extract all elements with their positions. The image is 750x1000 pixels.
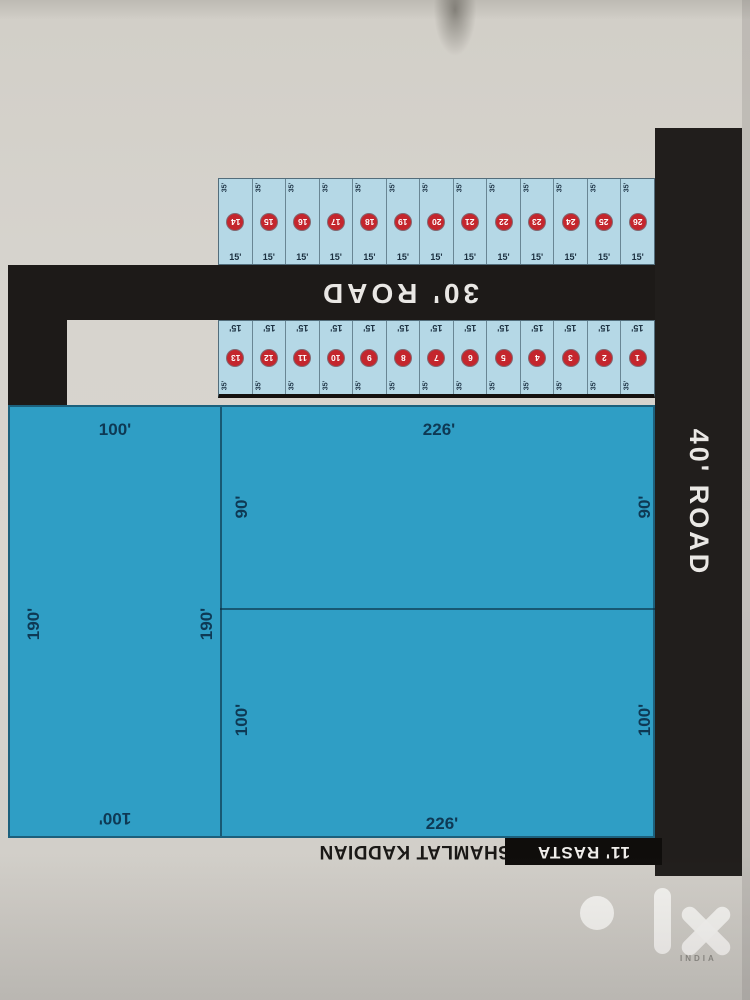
plot-number: 5 (501, 353, 506, 363)
strip-plot-cell: 15'335' (554, 321, 588, 394)
plot-dimension-label: 15' (521, 252, 554, 262)
strip-plot-cell: 35'2015' (420, 179, 454, 264)
plot-number-badge: 24 (563, 214, 579, 230)
plot-number-badge: 1 (630, 350, 646, 366)
plot-number-badge: 17 (328, 214, 344, 230)
plot-dimension-label: 15' (219, 323, 252, 333)
plot-dimension-label: 15' (320, 323, 353, 333)
olx-l-glyph (654, 888, 671, 954)
plot-dimension-label: 35' (255, 179, 262, 197)
plot-dimension-label: 35' (456, 377, 463, 395)
plot-number: 9 (367, 353, 372, 363)
strip-plot-cell: 35'2315' (521, 179, 555, 264)
plot-dimension-label: 15' (387, 252, 420, 262)
plot-dimension-label: 35' (624, 179, 631, 197)
strip-plot-cell: 35'1915' (387, 179, 421, 264)
strip-plot-cell: 35'1415' (219, 179, 253, 264)
plot-number-badge: 7 (428, 350, 444, 366)
plot-number: 4 (535, 353, 540, 363)
plot-dimension-label: 15' (253, 252, 286, 262)
strip-plot-cell: 35'1615' (286, 179, 320, 264)
plot-number: 23 (532, 217, 541, 227)
plot-dimension-label: 35' (222, 377, 229, 395)
strip-plot-cell: 15'535' (487, 321, 521, 394)
plot-dimension-label: 15' (420, 252, 453, 262)
strip-plot-cell: 35'2515' (588, 179, 622, 264)
plot-dimension-label: 35' (356, 377, 363, 395)
strip-plot-cell: 35'1815' (353, 179, 387, 264)
plot-divider-horizontal (220, 608, 657, 610)
plot-number: 11 (298, 353, 307, 363)
plot-number-badge: 15 (261, 214, 277, 230)
plot-number: 17 (331, 217, 340, 227)
plot-dimension-label: 35' (255, 377, 262, 395)
plot-number-badge: 25 (596, 214, 612, 230)
plot-dimension-label: 15' (487, 252, 520, 262)
plot-number: 2 (602, 353, 607, 363)
plot-dimension-label: 35' (490, 179, 497, 197)
plot-dimension-label: 35' (389, 179, 396, 197)
plot-dimension-label: 35' (624, 377, 631, 395)
plot-dimension-label: 35' (523, 377, 530, 395)
plot-dimension-label: 15' (253, 323, 286, 333)
plot-number-badge: 12 (261, 350, 277, 366)
plot-dimension-label: 15' (588, 252, 621, 262)
strip-plot-cell: 15'1035' (320, 321, 354, 394)
plot-dimension-label: 35' (490, 377, 497, 395)
site-plan-photo: 30' ROAD 35'1415'35'1515'35'1615'35'1715… (0, 0, 750, 1000)
dimension-label: 226' (423, 420, 455, 440)
plot-number-badge: 5 (496, 350, 512, 366)
plot-number-badge: 21 (462, 214, 478, 230)
plot-dimension-label: 15' (521, 323, 554, 333)
plot-dimension-label: 15' (621, 252, 654, 262)
plot-number-badge: 3 (563, 350, 579, 366)
dimension-label: 100' (232, 704, 252, 736)
plot-number-badge: 11 (294, 350, 310, 366)
plot-dimension-label: 15' (588, 323, 621, 333)
plot-number-badge: 13 (227, 350, 243, 366)
plot-dimension-label: 35' (557, 377, 564, 395)
dimension-label: 190' (197, 608, 217, 640)
strip-plot-cell: 15'235' (588, 321, 622, 394)
plot-dimension-label: 35' (356, 179, 363, 197)
strip-plot-cell: 35'1715' (320, 179, 354, 264)
strip-plot-row-lower: 15'1335'15'1235'15'1135'15'1035'15'935'1… (218, 320, 655, 398)
road-30-left-leg (8, 265, 67, 405)
plot-dimension-label: 15' (320, 252, 353, 262)
plot-number-badge: 14 (227, 214, 243, 230)
plot-dimension-label: 15' (554, 252, 587, 262)
plot-dimension-label: 15' (621, 323, 654, 333)
road-40: 40' ROAD (655, 128, 742, 876)
strip-plot-cell: 15'935' (353, 321, 387, 394)
plot-divider-vertical (220, 407, 222, 836)
strip-plot-cell: 35'2415' (554, 179, 588, 264)
plot-dimension-label: 35' (389, 377, 396, 395)
plot-number-badge: 19 (395, 214, 411, 230)
strip-plot-cell: 15'1235' (253, 321, 287, 394)
plot-number: 25 (599, 217, 608, 227)
plot-number-badge: 4 (529, 350, 545, 366)
road-40-label: 40' ROAD (683, 428, 714, 575)
olx-region-label: INDIA (680, 954, 717, 963)
plot-dimension-label: 35' (222, 179, 229, 197)
olx-watermark: INDIA (572, 880, 742, 970)
plot-dimension-label: 15' (353, 323, 386, 333)
plot-number-badge: 22 (496, 214, 512, 230)
strip-plot-cell: 35'1515' (253, 179, 287, 264)
plot-dimension-label: 15' (454, 323, 487, 333)
dimension-label: 100' (99, 420, 131, 440)
plot-dimension-label: 15' (353, 252, 386, 262)
strip-plot-cell: 15'435' (521, 321, 555, 394)
plot-number-badge: 6 (462, 350, 478, 366)
plot-number-badge: 20 (428, 214, 444, 230)
strip-plot-cell: 15'635' (454, 321, 488, 394)
plot-number: 14 (231, 217, 240, 227)
plot-number-badge: 2 (596, 350, 612, 366)
dimension-label: 226' (426, 814, 458, 834)
plot-dimension-label: 35' (423, 377, 430, 395)
plot-number-badge: 9 (361, 350, 377, 366)
photo-shadow-smudge (415, 0, 495, 120)
strip-plot-cell: 15'735' (420, 321, 454, 394)
plot-number: 22 (499, 217, 508, 227)
plot-number: 1 (635, 353, 640, 363)
dimension-label: 90' (232, 496, 252, 519)
road-30-label: 30' ROAD (319, 277, 479, 309)
plot-number: 26 (633, 217, 642, 227)
plot-number: 8 (401, 353, 406, 363)
plot-dimension-label: 15' (454, 252, 487, 262)
dimension-label: 100' (99, 808, 131, 828)
plot-number-badge: 18 (361, 214, 377, 230)
plot-dimension-label: 15' (219, 252, 252, 262)
plot-dimension-label: 15' (286, 323, 319, 333)
road-11-rasta: 11' RASTA (505, 838, 662, 865)
plot-number: 12 (264, 353, 273, 363)
strip-plot-cell: 15'835' (387, 321, 421, 394)
plot-number: 13 (231, 353, 240, 363)
plot-number: 6 (468, 353, 473, 363)
plot-dimension-label: 35' (523, 179, 530, 197)
strip-plot-cell: 35'2615' (621, 179, 654, 264)
plot-number-badge: 8 (395, 350, 411, 366)
strip-plot-cell: 35'2215' (487, 179, 521, 264)
plot-number: 19 (398, 217, 407, 227)
plot-dimension-label: 15' (554, 323, 587, 333)
plot-dimension-label: 35' (289, 179, 296, 197)
plot-number: 21 (465, 217, 474, 227)
strip-plot-cell: 15'135' (621, 321, 654, 394)
plot-dimension-label: 35' (590, 179, 597, 197)
plot-number-badge: 10 (328, 350, 344, 366)
strip-plot-cell: 35'2115' (454, 179, 488, 264)
strip-plot-row-upper: 35'1415'35'1515'35'1615'35'1715'35'1815'… (218, 178, 655, 265)
plot-number: 24 (566, 217, 575, 227)
plot-number: 16 (298, 217, 307, 227)
plot-dimension-label: 35' (322, 377, 329, 395)
road-11-label: 11' RASTA (537, 842, 630, 862)
plot-dimension-label: 35' (557, 179, 564, 197)
strip-plot-cell: 15'1135' (286, 321, 320, 394)
plot-dimension-label: 15' (286, 252, 319, 262)
dimension-label: 100' (635, 704, 655, 736)
plot-dimension-label: 15' (487, 323, 520, 333)
plot-number: 10 (331, 353, 340, 363)
photo-edge-shade (742, 0, 750, 1000)
plot-number-badge: 26 (630, 214, 646, 230)
plot-number: 20 (432, 217, 441, 227)
plot-number: 7 (434, 353, 439, 363)
plot-dimension-label: 35' (423, 179, 430, 197)
road-30: 30' ROAD (8, 265, 660, 320)
dimension-label: 90' (635, 496, 655, 519)
plot-number-badge: 23 (529, 214, 545, 230)
large-plot-area: 100' 226' 190' 190' 90' 90' 100' 100' 10… (8, 405, 655, 838)
area-note-label: SHAMLAT KADDIAN (319, 840, 511, 862)
dimension-label: 190' (24, 608, 44, 640)
plot-dimension-label: 35' (456, 179, 463, 197)
plot-dimension-label: 15' (387, 323, 420, 333)
plot-number: 3 (568, 353, 573, 363)
plot-number: 18 (365, 217, 374, 227)
plot-dimension-label: 35' (590, 377, 597, 395)
strip-plot-cell: 15'1335' (219, 321, 253, 394)
plot-number-badge: 16 (294, 214, 310, 230)
olx-o-glyph (580, 896, 614, 930)
plot-number: 15 (264, 217, 273, 227)
plot-dimension-label: 15' (420, 323, 453, 333)
plot-dimension-label: 35' (289, 377, 296, 395)
plot-dimension-label: 35' (322, 179, 329, 197)
